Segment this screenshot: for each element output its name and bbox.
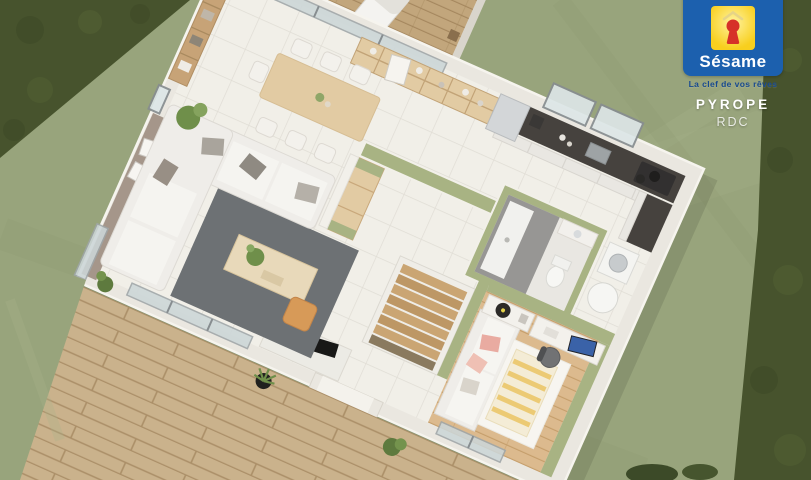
brand-tagline: La clef de vos rêves — [683, 79, 783, 89]
keyhole-icon — [711, 6, 755, 50]
brand-logo: MAISONS Sésame La clef de vos rêves PYRO… — [683, 0, 783, 129]
floor-label: RDC — [683, 115, 783, 129]
brand-top-text: MAISONS — [683, 0, 783, 3]
floorplan-3d-render: MAISONS Sésame La clef de vos rêves PYRO… — [0, 0, 811, 480]
plan-name: PYROPE — [683, 97, 783, 112]
brand-name: Sésame — [683, 52, 783, 72]
keyhole-glyph — [711, 6, 755, 50]
brand-card: MAISONS Sésame — [683, 0, 783, 76]
